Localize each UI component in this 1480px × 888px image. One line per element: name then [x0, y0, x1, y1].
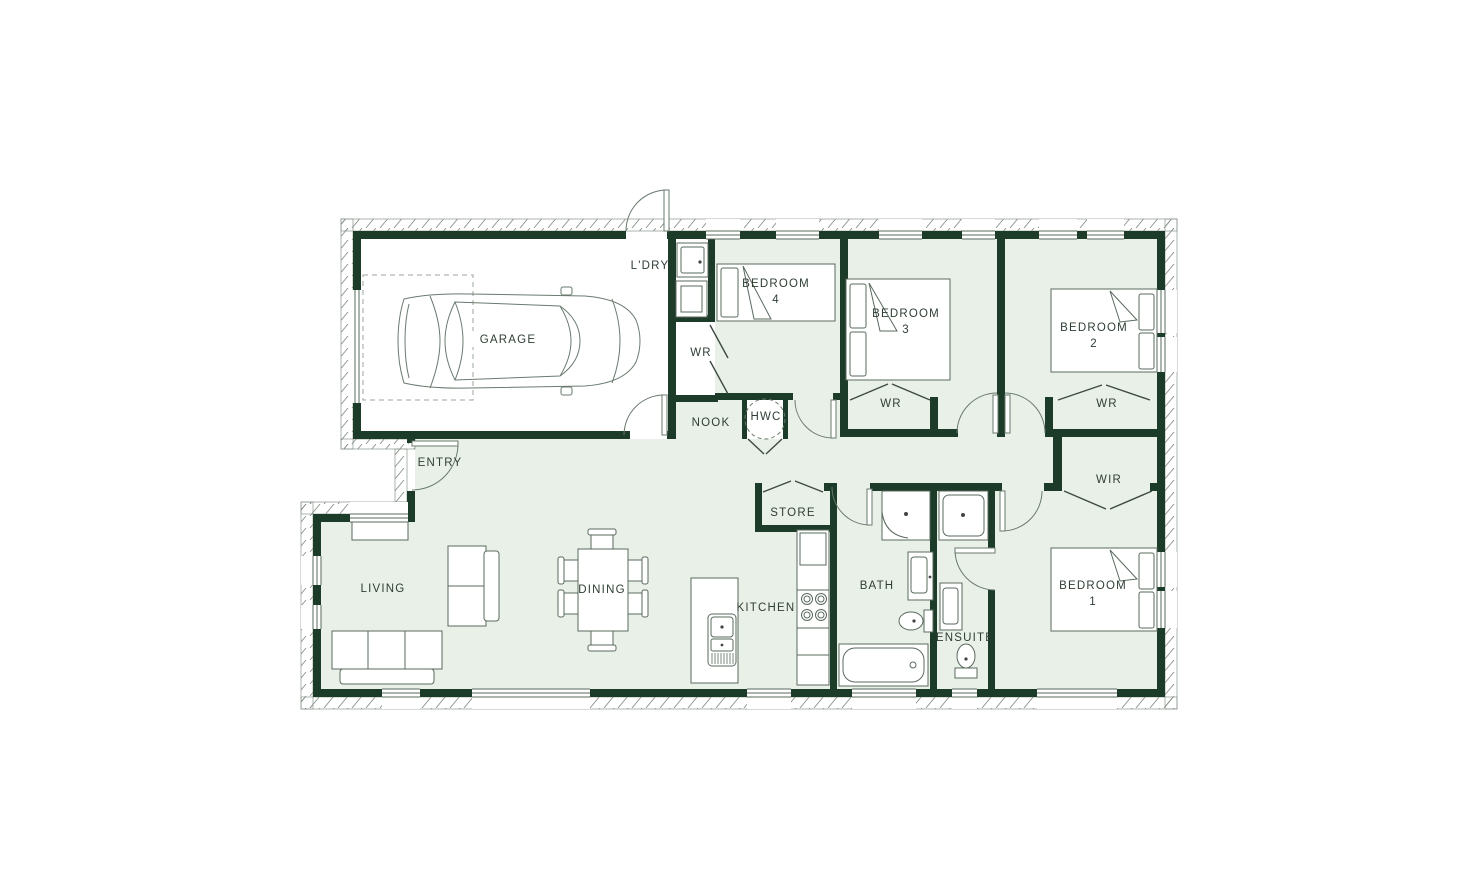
room-label-wr-bedroom4: WR [690, 347, 712, 359]
window [962, 219, 995, 239]
room-label-wr-bedroom2: WR [1096, 398, 1118, 410]
garage-door [352, 290, 362, 403]
dining-chair [628, 557, 648, 584]
room-label-bedroom3-number: 3 [902, 324, 910, 336]
shower-bath [882, 491, 930, 540]
window [852, 689, 916, 709]
window-seat [352, 522, 408, 540]
window [1157, 552, 1177, 587]
bed-bedroom4 [717, 264, 835, 321]
room-label-bedroom4-number: 4 [772, 294, 780, 306]
dining-chair [558, 590, 578, 617]
room-label-bedroom1: BEDROOM [1059, 580, 1127, 592]
dining-chair [558, 557, 578, 584]
room-label-entry: ENTRY [418, 457, 463, 469]
bed-bedroom3 [846, 279, 950, 380]
window [301, 556, 321, 585]
kitchen-bench [797, 530, 829, 685]
room-label-garage: GARAGE [480, 334, 536, 346]
room-label-bath: BATH [860, 580, 895, 592]
window [1087, 219, 1124, 239]
room-label-living: LIVING [361, 583, 406, 595]
dining-chair [588, 529, 616, 549]
window [776, 219, 819, 239]
shower-ensuite [939, 491, 988, 540]
sofa-two-seat [448, 546, 499, 626]
dining-chair [628, 590, 648, 617]
window [301, 605, 321, 629]
laundry-tub [676, 281, 707, 317]
window [382, 689, 420, 709]
floor-plan-page: GARAGE L'DRY BEDROOM 4 BEDROOM 3 BEDROOM… [0, 0, 1480, 888]
window [952, 689, 977, 709]
window [1157, 591, 1177, 628]
room-label-hwc: HWC [750, 411, 781, 423]
window [1157, 290, 1177, 333]
toilet-bath [899, 610, 933, 632]
window [472, 689, 590, 709]
room-label-bedroom4: BEDROOM [742, 278, 810, 290]
bathtub [839, 644, 928, 686]
window [706, 219, 740, 239]
room-label-dining: DINING [578, 584, 625, 596]
kitchen-island [691, 578, 738, 683]
window [1157, 337, 1177, 372]
window [350, 502, 408, 522]
room-label-bedroom1-number: 1 [1089, 596, 1097, 608]
window [747, 689, 791, 709]
window [1037, 689, 1117, 709]
vanity-ensuite [940, 583, 962, 630]
room-label-store: STORE [770, 507, 815, 519]
room-label-wir: WIR [1096, 474, 1122, 486]
window [1039, 219, 1077, 239]
room-label-bedroom3: BEDROOM [872, 308, 940, 320]
room-label-bedroom2: BEDROOM [1060, 322, 1128, 334]
room-label-bedroom2-number: 2 [1090, 338, 1098, 350]
window [879, 219, 922, 239]
vanity-bath [908, 552, 933, 600]
sofa-three-seat [332, 631, 442, 684]
room-label-wr-bedroom3: WR [880, 398, 902, 410]
room-label-ensuite: ENSUITE [936, 632, 994, 644]
washing-machine [677, 243, 708, 277]
room-label-nook: NOOK [692, 417, 731, 429]
dining-chair [588, 631, 616, 651]
floor-plan-drawing: GARAGE L'DRY BEDROOM 4 BEDROOM 3 BEDROOM… [0, 0, 1480, 888]
room-label-laundry: L'DRY [631, 260, 670, 272]
toilet-ensuite [955, 644, 977, 678]
room-label-kitchen: KITCHEN [737, 602, 796, 614]
